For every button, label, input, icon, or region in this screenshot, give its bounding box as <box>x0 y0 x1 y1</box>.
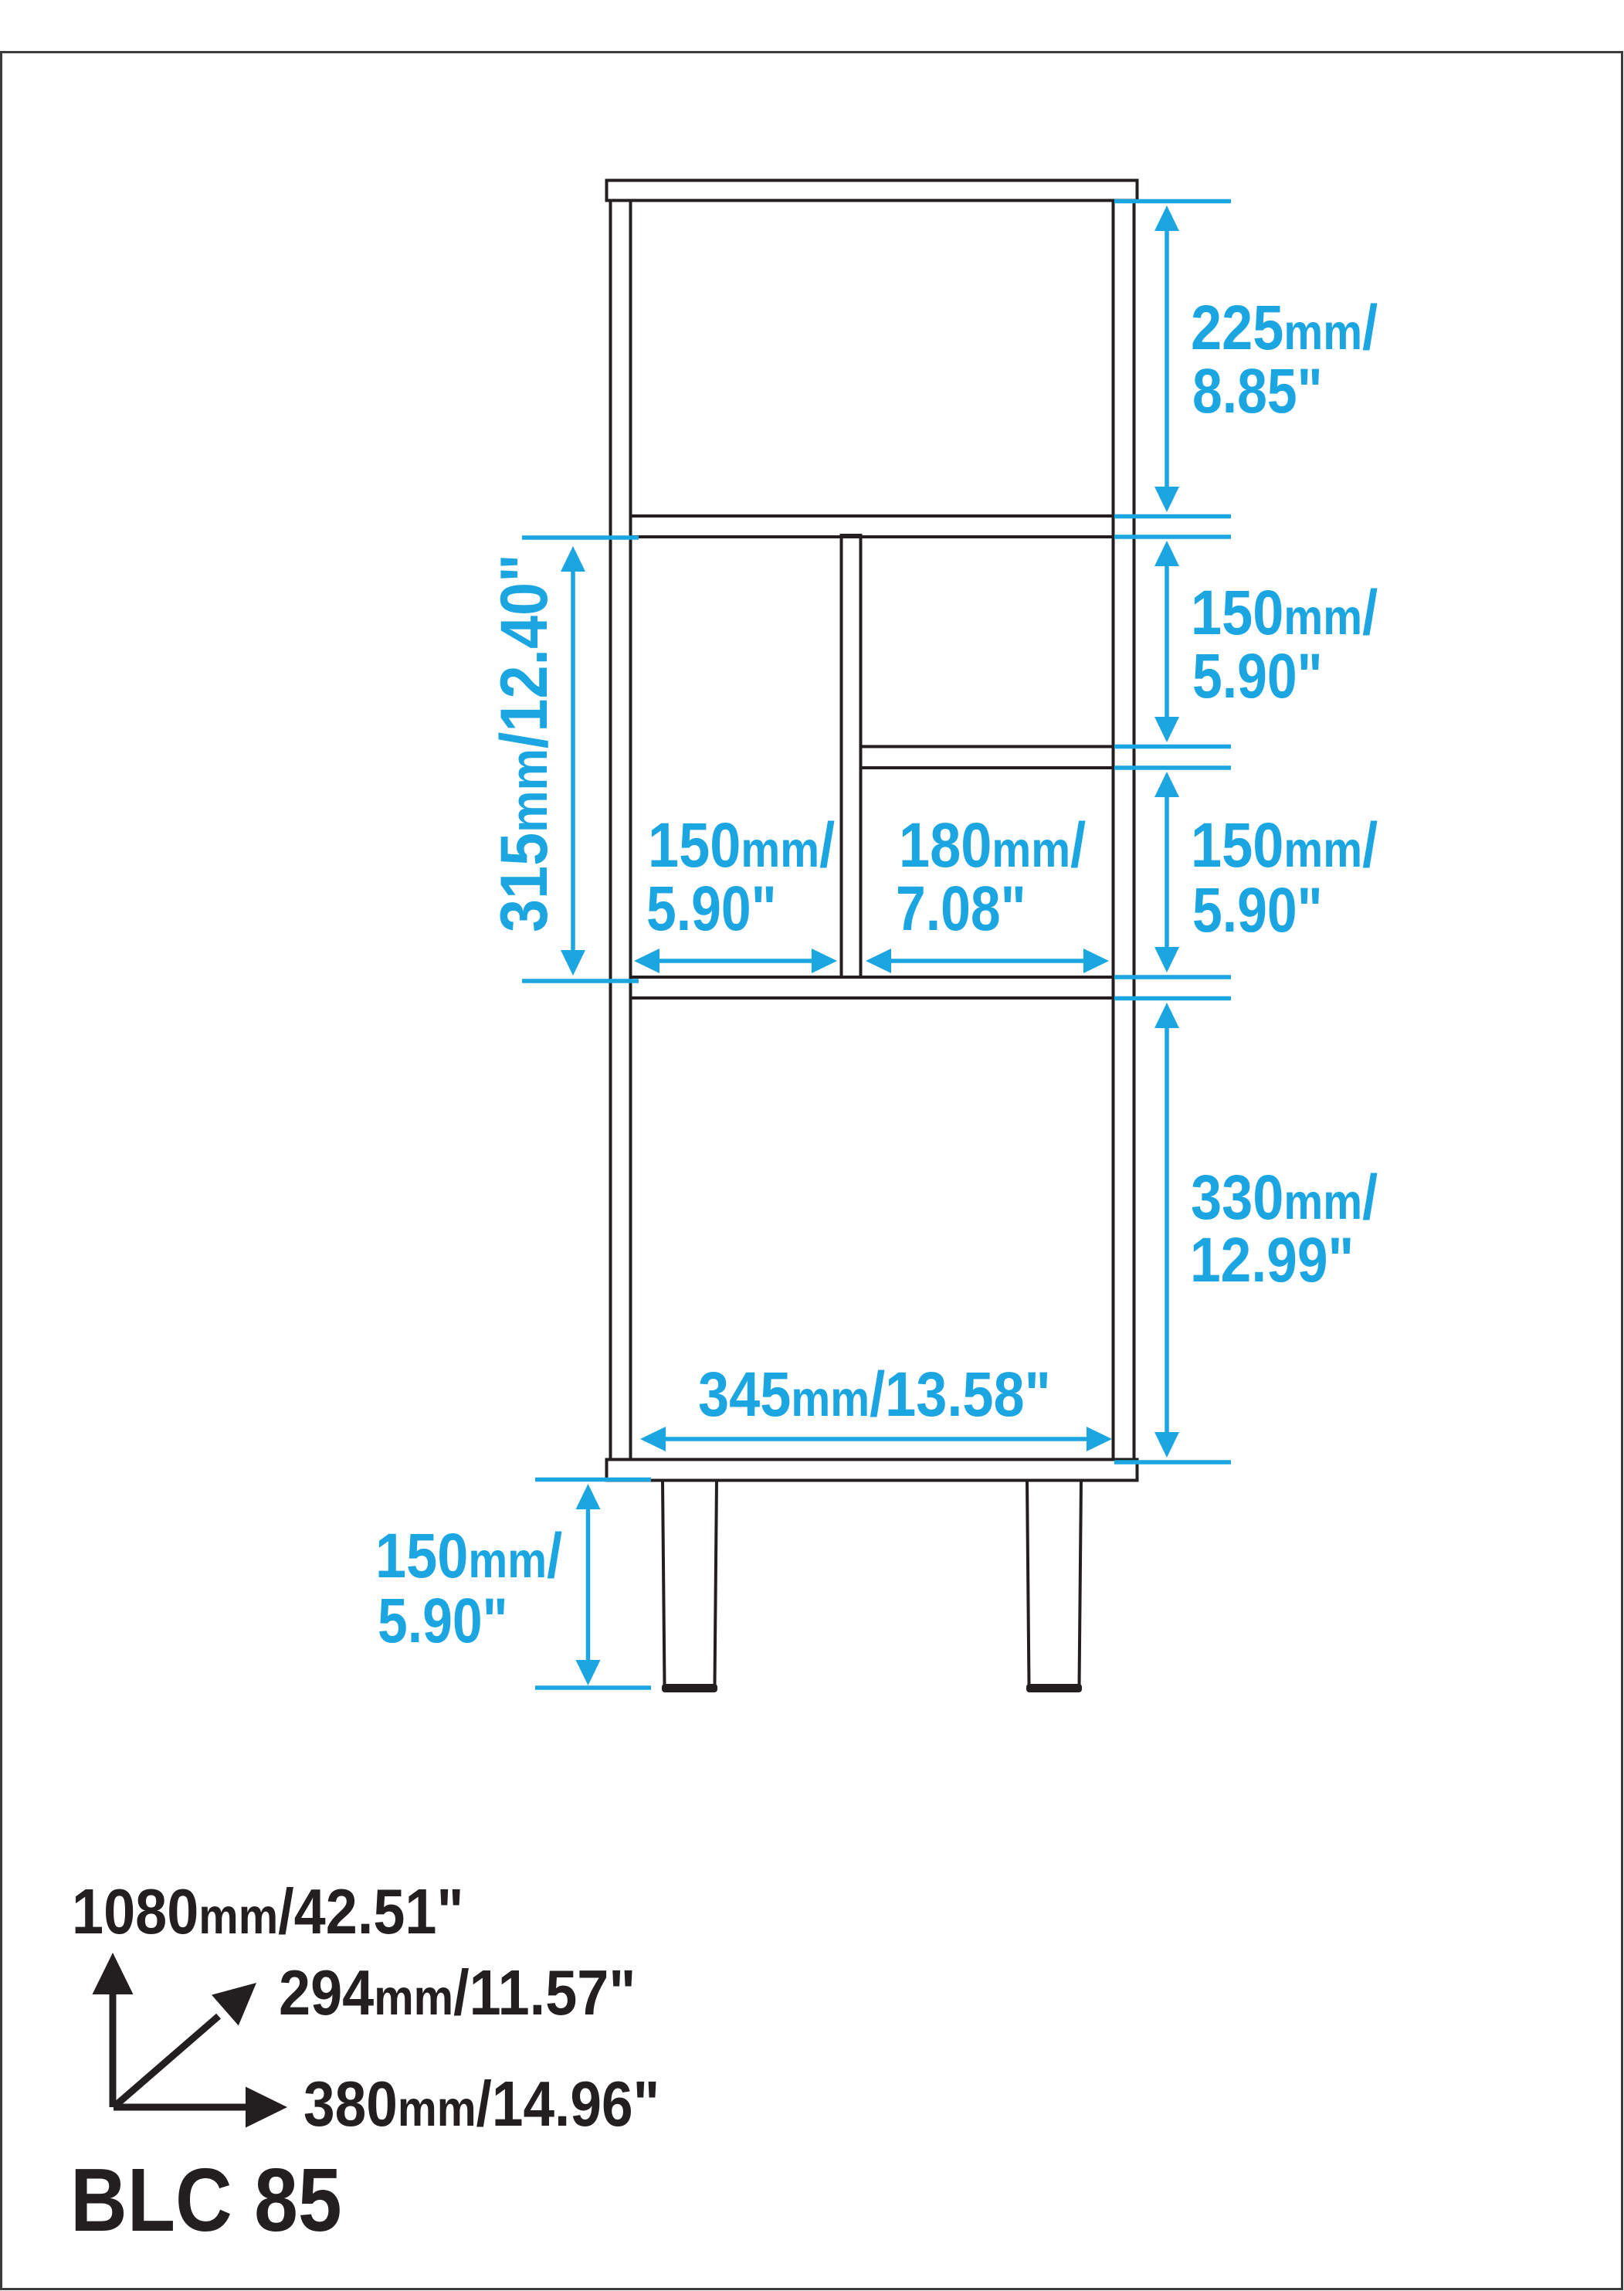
svg-text:345mm/13.58": 345mm/13.58" <box>698 1359 1051 1430</box>
svg-text:5.90": 5.90" <box>1192 875 1323 946</box>
svg-text:5.90": 5.90" <box>646 874 777 945</box>
svg-text:380mm/14.96": 380mm/14.96" <box>303 2068 659 2140</box>
svg-text:5.90": 5.90" <box>378 1586 508 1657</box>
svg-text:315mm/12.40": 315mm/12.40" <box>487 554 561 932</box>
svg-text:7.08": 7.08" <box>896 874 1026 945</box>
svg-text:BLC 85: BLC 85 <box>70 2150 342 2251</box>
svg-text:12.99": 12.99" <box>1190 1224 1354 1295</box>
svg-text:8.85": 8.85" <box>1192 356 1323 427</box>
svg-text:294mm/11.57": 294mm/11.57" <box>279 1957 636 2028</box>
svg-text:5.90": 5.90" <box>1192 641 1323 712</box>
